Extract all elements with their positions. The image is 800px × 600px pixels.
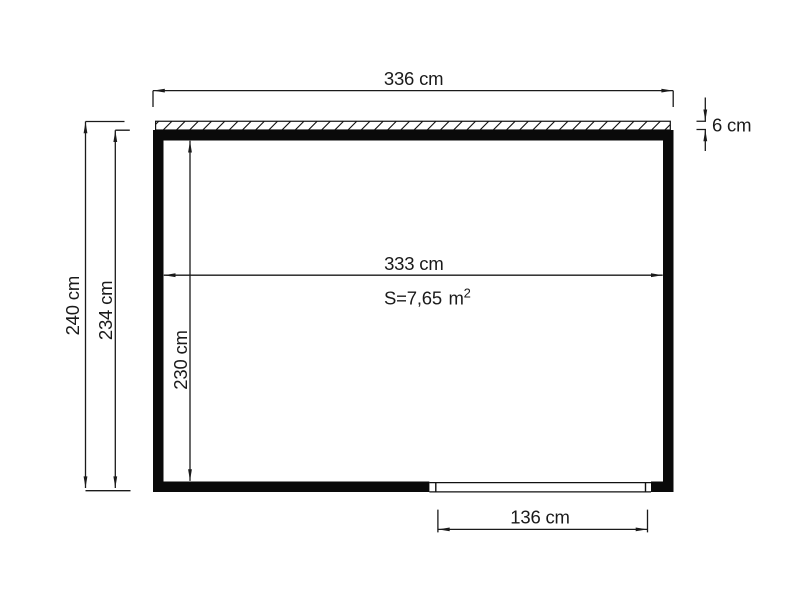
svg-text:230 cm: 230 cm	[170, 330, 191, 389]
svg-text:136 cm: 136 cm	[510, 507, 569, 528]
svg-text:240 cm: 240 cm	[62, 276, 83, 335]
svg-text:336 cm: 336 cm	[384, 68, 443, 89]
svg-text:333 cm: 333 cm	[384, 253, 443, 274]
svg-text:S=7,65m2: S=7,65m2	[384, 286, 471, 309]
svg-text:6 cm: 6 cm	[712, 115, 751, 136]
svg-text:234 cm: 234 cm	[95, 281, 116, 340]
